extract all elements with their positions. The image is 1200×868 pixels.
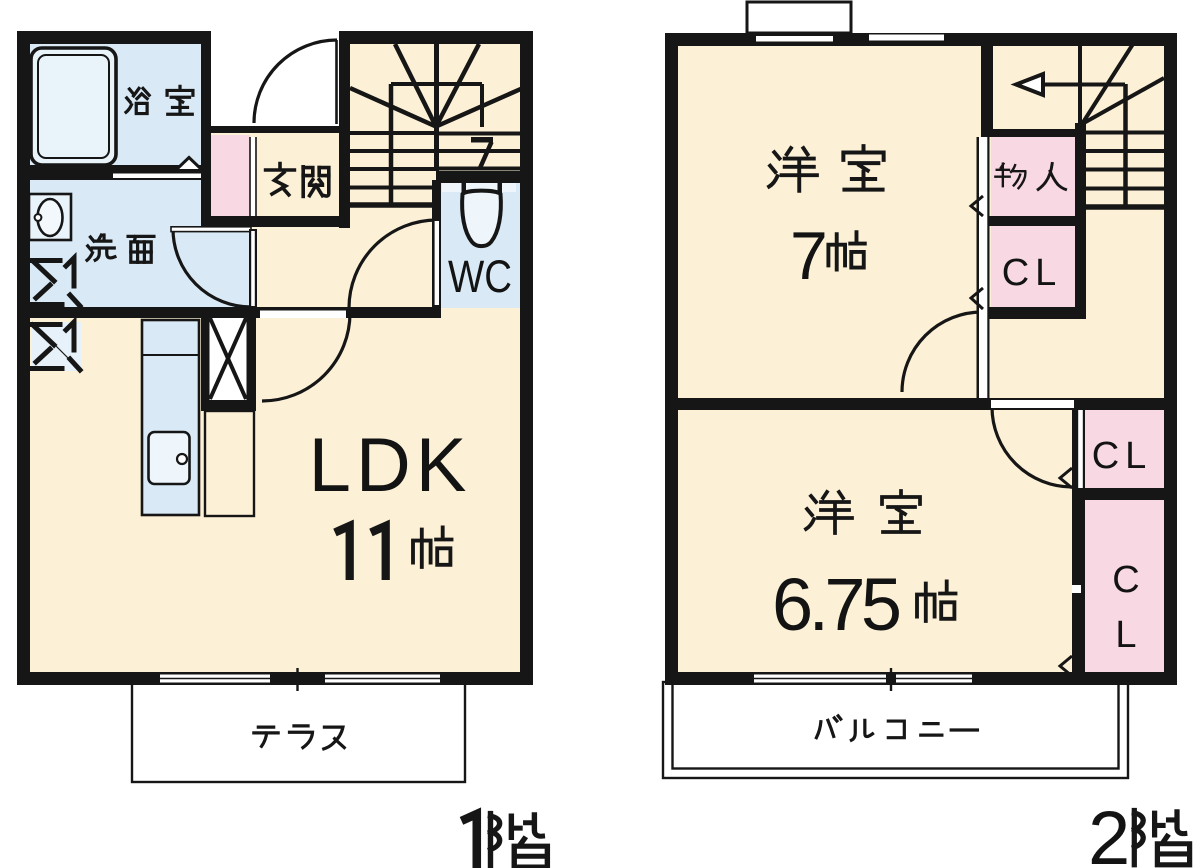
svg-text:2: 2 [1088,796,1130,868]
svg-text:LDK: LDK [309,423,472,508]
svg-text:L: L [1115,614,1136,656]
svg-text:7: 7 [790,218,828,294]
svg-text:6.75: 6.75 [772,563,902,646]
svg-text:CL: CL [1002,252,1063,294]
svg-text:WC: WC [448,251,512,302]
svg-text:CL: CL [1092,435,1153,477]
svg-text:C: C [1112,559,1139,601]
